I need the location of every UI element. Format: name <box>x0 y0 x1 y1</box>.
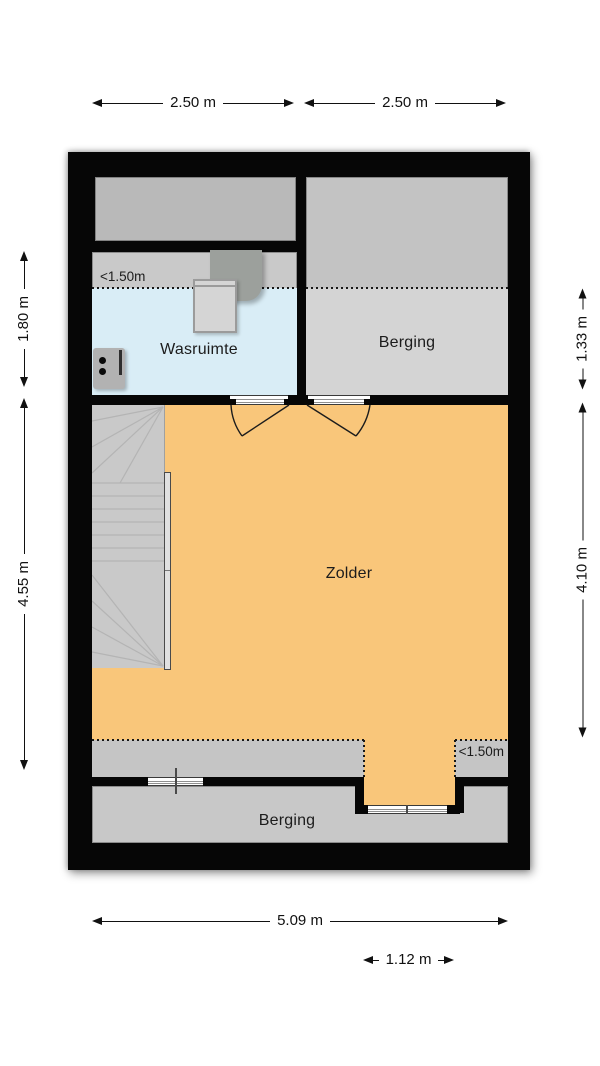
wall <box>370 395 508 405</box>
arrow-left-icon <box>579 380 587 390</box>
dimension-label: 4.10 m <box>575 540 591 600</box>
dimension-right-lower: 4.10 m <box>575 403 591 738</box>
arrow-left-icon <box>579 728 587 738</box>
arrow-right-icon <box>444 956 454 964</box>
low-ceiling-zone-left <box>92 740 364 778</box>
arrow-right-icon <box>579 288 587 298</box>
arrow-left-icon <box>20 377 28 387</box>
dimension-left-upper: 1.80 m <box>16 251 32 387</box>
floor-plan-page: 2.50 m 2.50 m 1.80 m 4.55 m 1.33 m 4.10 … <box>0 0 600 1066</box>
room-label-berging-top: Berging <box>379 334 436 352</box>
washing-machine-icon <box>193 279 237 333</box>
wall <box>297 177 306 395</box>
dimension-label: 2.50 m <box>163 95 223 111</box>
low-ceiling-label-wasruimte: <1.50m <box>100 269 145 284</box>
dimension-top-left: 2.50 m <box>92 95 294 111</box>
stair-handrail <box>164 472 171 670</box>
zolder-dormer <box>364 740 455 805</box>
arrow-left-icon <box>304 99 314 107</box>
arrow-right-icon <box>498 917 508 925</box>
room-label-wasruimte: Wasruimte <box>160 341 238 359</box>
low-ceiling-line <box>92 739 364 741</box>
arrow-left-icon <box>363 956 373 964</box>
arrow-right-icon <box>20 251 28 261</box>
dimension-label: 1.80 m <box>16 289 32 349</box>
berging-door-threshold <box>308 395 370 405</box>
arrow-right-icon <box>496 99 506 107</box>
window-frame-line <box>175 768 177 794</box>
window-frame-line <box>406 805 408 814</box>
room-label-zolder: Zolder <box>326 565 373 583</box>
dimension-right-upper: 1.33 m <box>575 289 591 390</box>
wasruimte-door-threshold <box>230 395 290 405</box>
arrow-left-icon <box>92 99 102 107</box>
arrow-right-icon <box>579 402 587 412</box>
low-ceiling-line <box>363 740 365 778</box>
wall <box>92 241 306 252</box>
dimension-label: 1.12 m <box>379 952 439 968</box>
arrow-right-icon <box>284 99 294 107</box>
room-label-berging-bottom: Berging <box>259 812 316 830</box>
low-ceiling-line <box>455 739 508 741</box>
low-ceiling-line <box>306 287 508 289</box>
ventilation-unit-icon <box>93 348 125 389</box>
floor-plan: Wasruimte Berging Zolder Berging <1.50m … <box>68 152 530 870</box>
stair-treads-icon <box>92 405 165 668</box>
dimension-label: 5.09 m <box>270 913 330 929</box>
storage-compartment <box>95 177 296 241</box>
wall <box>355 805 368 814</box>
wall <box>92 395 230 405</box>
wall <box>447 805 460 814</box>
arrow-left-icon <box>20 760 28 770</box>
low-ceiling-label-zolder: <1.50m <box>455 744 504 759</box>
wall <box>288 395 308 405</box>
arrow-left-icon <box>92 917 102 925</box>
wall <box>92 777 148 786</box>
dimension-bottom-width: 5.09 m <box>92 913 508 929</box>
plan-interior: Wasruimte Berging Zolder Berging <1.50m … <box>92 177 508 843</box>
dimension-label: 1.33 m <box>575 309 591 369</box>
staircase <box>92 405 165 668</box>
wall <box>203 777 355 786</box>
dimension-label: 2.50 m <box>375 95 435 111</box>
dimension-label: 4.55 m <box>16 554 32 614</box>
dimension-bottom-dormer: 1.12 m <box>363 952 454 968</box>
arrow-right-icon <box>20 398 28 408</box>
room-berging-top <box>306 177 508 395</box>
dimension-top-right: 2.50 m <box>304 95 506 111</box>
dimension-left-lower: 4.55 m <box>16 398 32 770</box>
